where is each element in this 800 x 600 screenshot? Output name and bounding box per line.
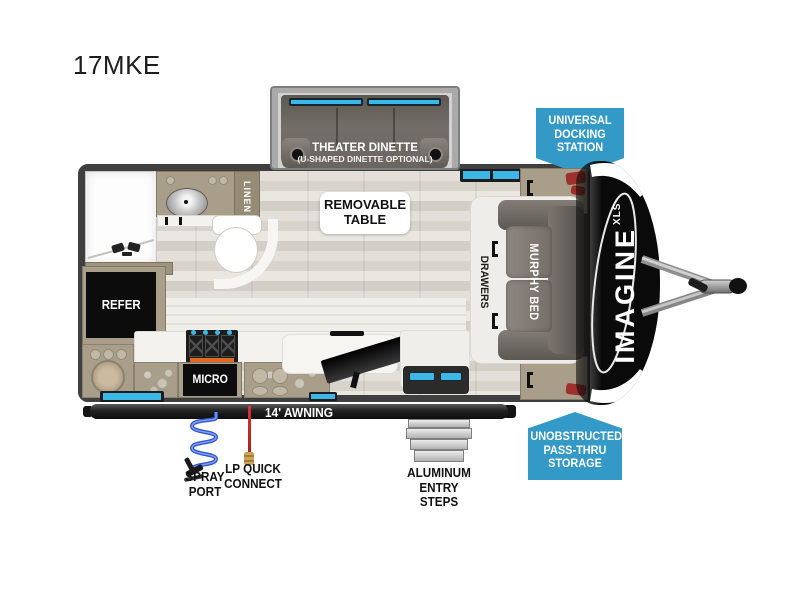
- window-icon: [463, 171, 490, 179]
- hitch-ball-icon: [729, 278, 747, 294]
- entry-step: [406, 428, 472, 439]
- floorplan-canvas: 17MKE THEATER DINETTE (U-SHAPED DINETTE …: [0, 0, 800, 600]
- shower-fixture: [80, 168, 260, 268]
- removable-table-label: REMOVABLE TABLE: [320, 192, 410, 234]
- burner-icon: [90, 349, 101, 360]
- hitch: [630, 245, 760, 325]
- theater-dinette-label: THEATER DINETTE: [290, 142, 440, 155]
- sofa-cushion-divider: [393, 108, 395, 146]
- lp-quick-connect-label: LP QUICK CONNECT: [217, 462, 289, 491]
- drawer-handle-icon: [492, 241, 498, 257]
- kitchen-backsplash: [140, 298, 466, 332]
- pass-thru-storage-badge: UNOBSTRUCTED PASS-THRU STORAGE: [528, 412, 622, 480]
- window-icon: [103, 393, 161, 400]
- entry-step: [410, 439, 468, 450]
- stove-knob-icon: [215, 330, 220, 335]
- micro-label: MICRO: [192, 374, 227, 386]
- theater-dinette-sublabel: (U-SHAPED DINETTE OPTIONAL): [280, 155, 450, 165]
- awning-label: 14' AWNING: [107, 405, 492, 420]
- stove-knob-icon: [203, 330, 208, 335]
- burner-icon: [103, 349, 114, 360]
- slideout-window-icon: [289, 98, 363, 106]
- drawer-handle-icon: [492, 313, 498, 329]
- entry-step-well-icon: [409, 372, 435, 381]
- sink-basin-icon: [252, 386, 268, 396]
- page-title: 17MKE: [73, 50, 161, 81]
- cabinet-handle-icon: [527, 180, 533, 196]
- lp-gas-line: [248, 406, 251, 453]
- entry-step: [414, 450, 464, 462]
- window-icon: [311, 394, 335, 399]
- refer-label: REFER: [102, 298, 141, 312]
- shower-head-icon: [111, 242, 141, 256]
- stove-knob-icon: [191, 330, 196, 335]
- burner-icon: [116, 349, 127, 360]
- refrigerator: REFER: [86, 272, 156, 338]
- slideout-window-icon: [367, 98, 441, 106]
- sofa-cushion-divider: [336, 108, 338, 146]
- round-sink-icon: [91, 360, 125, 394]
- entry-step: [408, 419, 470, 428]
- entry-steps-label: ALUMINUM ENTRY STEPS: [401, 466, 477, 510]
- microwave: MICRO: [183, 364, 237, 396]
- counter-handle-icon: [330, 331, 364, 336]
- stove-knob-icon: [227, 330, 232, 335]
- window-icon: [493, 171, 519, 179]
- stove-grate-icon: [221, 335, 235, 357]
- drawers-label: DRAWERS: [477, 249, 491, 315]
- entry-step-well-icon: [440, 372, 462, 381]
- murphy-bed-label: MURPHY BED: [525, 235, 541, 329]
- stove-grate-icon: [205, 335, 219, 357]
- cabinet-handle-icon: [527, 372, 533, 388]
- sink-basin-icon: [272, 386, 288, 396]
- stove-grate-icon: [189, 335, 203, 357]
- sink-basin-icon: [252, 368, 268, 384]
